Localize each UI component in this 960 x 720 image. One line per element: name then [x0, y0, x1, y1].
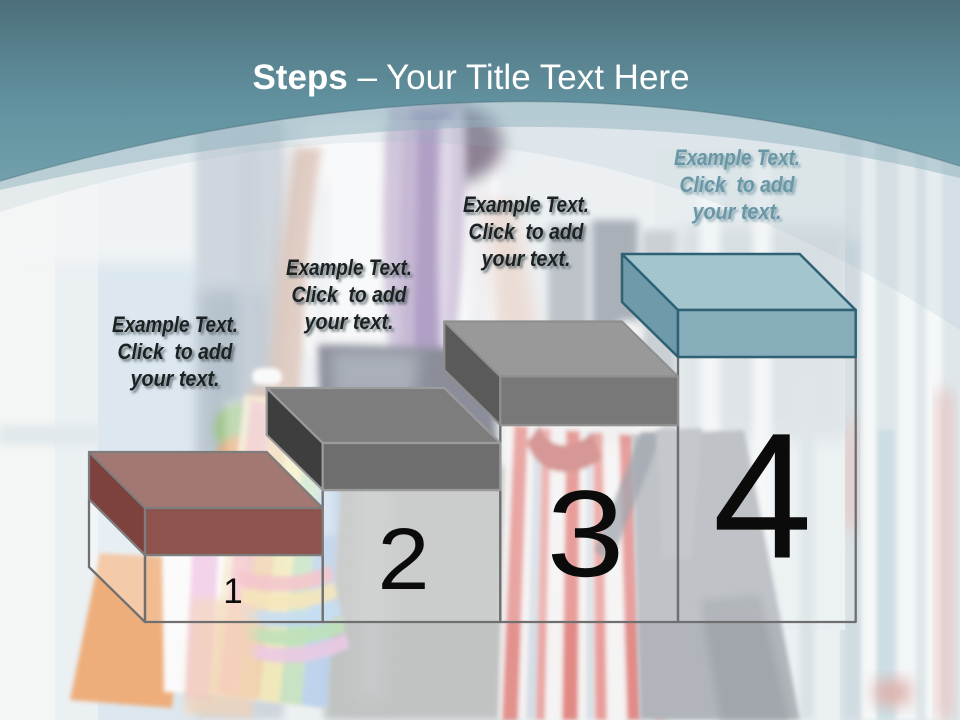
svg-text:Click to add: Click to add: [680, 172, 796, 197]
svg-text:your text.: your text.: [692, 199, 782, 224]
svg-text:your text.: your text.: [130, 366, 220, 391]
svg-text:4: 4: [713, 396, 813, 596]
svg-text:Example Text.: Example Text.: [674, 145, 800, 170]
svg-text:Example Text.: Example Text.: [112, 312, 238, 337]
svg-text:Example Text.: Example Text.: [463, 192, 589, 217]
svg-text:2: 2: [378, 511, 430, 608]
svg-text:3: 3: [547, 466, 625, 603]
svg-text:Example Text.: Example Text.: [286, 255, 412, 280]
svg-text:Click to add: Click to add: [469, 219, 585, 244]
svg-text:your text.: your text.: [481, 246, 571, 271]
svg-text:Click to add: Click to add: [292, 282, 408, 307]
svg-text:Steps – Your Title Text Here: Steps – Your Title Text Here: [252, 58, 689, 97]
svg-text:1: 1: [223, 572, 242, 611]
svg-text:your text.: your text.: [304, 309, 394, 334]
svg-text:Click to add: Click to add: [118, 339, 234, 364]
